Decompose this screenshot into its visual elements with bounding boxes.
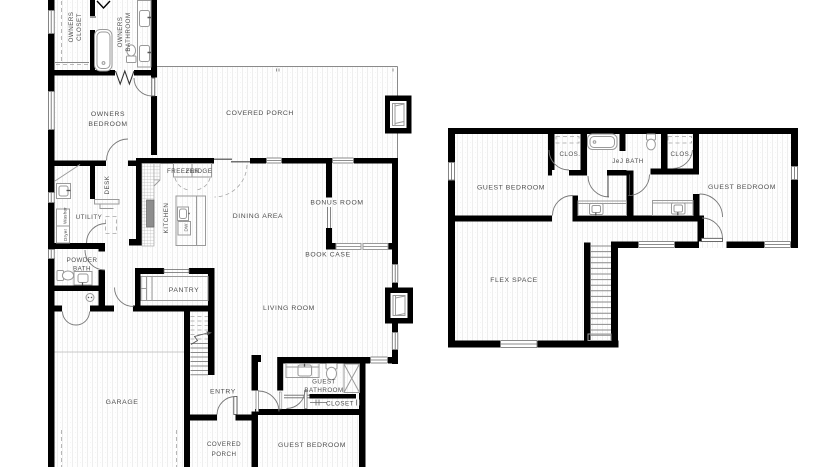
svg-text:GARAGE: GARAGE xyxy=(106,399,139,406)
svg-text:BOOK CASE: BOOK CASE xyxy=(305,252,350,259)
svg-text:PORCH: PORCH xyxy=(212,451,237,458)
svg-text:COVERED: COVERED xyxy=(207,441,241,448)
svg-text:POWDER: POWDER xyxy=(67,257,98,264)
svg-text:CLOSET: CLOSET xyxy=(326,401,354,408)
svg-text:ENTRY: ENTRY xyxy=(210,389,236,396)
svg-text:UTILITY: UTILITY xyxy=(76,214,103,221)
svg-text:CLOSET: CLOSET xyxy=(76,13,83,41)
svg-text:GUEST BEDROOM: GUEST BEDROOM xyxy=(708,184,776,191)
svg-text:BATH: BATH xyxy=(73,266,91,273)
svg-text:BATHROOM: BATHROOM xyxy=(304,387,343,394)
svg-text:GUEST: GUEST xyxy=(312,379,336,386)
svg-text:KITCHEN: KITCHEN xyxy=(163,203,170,234)
svg-text:BATHROOM: BATHROOM xyxy=(125,12,132,51)
svg-text:GUEST BEDROOM: GUEST BEDROOM xyxy=(278,442,346,449)
svg-text:DW: DW xyxy=(184,223,189,232)
svg-text:JeJ BATH: JeJ BATH xyxy=(612,158,643,165)
svg-text:LIVING ROOM: LIVING ROOM xyxy=(263,305,315,312)
svg-text:CLOS.: CLOS. xyxy=(670,151,691,158)
svg-text:OWNERS: OWNERS xyxy=(91,111,125,118)
svg-text:PANTRY: PANTRY xyxy=(169,287,200,294)
svg-text:FRIDGE: FRIDGE xyxy=(186,168,212,175)
svg-text:Washer: Washer xyxy=(63,207,68,224)
svg-text:DINING AREA: DINING AREA xyxy=(233,213,283,220)
svg-text:BEDROOM: BEDROOM xyxy=(88,121,127,128)
svg-text:DESK: DESK xyxy=(104,175,111,194)
svg-text:Dryer: Dryer xyxy=(63,229,68,241)
svg-text:GUEST BEDROOM: GUEST BEDROOM xyxy=(477,185,545,192)
svg-text:OWNERS: OWNERS xyxy=(117,17,124,48)
svg-text:CLOS.: CLOS. xyxy=(559,151,580,158)
svg-text:OWNERS: OWNERS xyxy=(68,12,75,43)
svg-text:FLEX SPACE: FLEX SPACE xyxy=(490,277,537,284)
svg-text:COVERED PORCH: COVERED PORCH xyxy=(226,110,294,117)
svg-text:BONUS ROOM: BONUS ROOM xyxy=(310,200,363,207)
